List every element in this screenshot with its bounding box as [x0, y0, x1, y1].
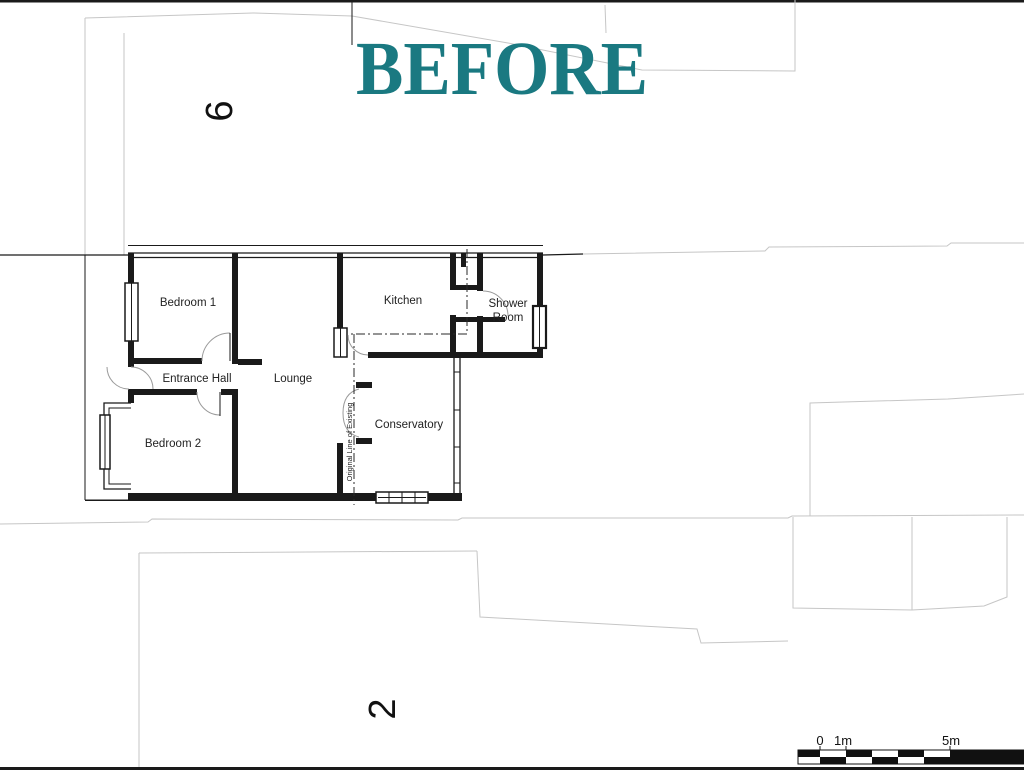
wall-shower-west	[477, 253, 483, 291]
scale-label-0: 0	[816, 733, 823, 748]
wall-kitchen-east	[450, 253, 456, 290]
wall-bedroom2-lounge	[232, 389, 238, 500]
before-title: BEFORE	[356, 27, 648, 111]
sheet-top-border	[0, 0, 1024, 3]
plot-number-2: 2	[362, 698, 404, 719]
sheet-bottom-border	[0, 767, 1024, 770]
room-label-entrance-hall: Entrance Hall	[162, 373, 231, 385]
scale-bar: 0 1m 5m	[798, 733, 1024, 764]
room-label-bedroom2: Bedroom 2	[145, 438, 201, 450]
original-line-of-existing	[348, 249, 467, 505]
room-label-lounge: Lounge	[274, 373, 312, 385]
window-bedroom1	[125, 283, 138, 341]
wall-bedroom1-lounge	[232, 253, 238, 364]
room-label-shower-line2: Room	[493, 312, 524, 324]
room-label-shower-line1: Shower	[489, 298, 528, 310]
original-line-label: Original Line of Existing	[345, 403, 354, 482]
house-footprint	[85, 246, 546, 506]
window-shower-east	[533, 306, 546, 348]
wall-kitchen-bottom	[368, 352, 480, 358]
wall-bedroom2-top	[128, 389, 197, 395]
window-lounge-east	[334, 328, 347, 357]
window-conservatory-south	[376, 492, 428, 503]
room-labels: Bedroom 1 Entrance Hall Bedroom 2 Lounge…	[145, 295, 528, 481]
room-label-bedroom1: Bedroom 1	[160, 297, 216, 309]
wall-shower-east	[537, 253, 543, 306]
wall-shower-bottom	[477, 352, 543, 358]
plot-number-6: 6	[199, 100, 241, 121]
site-boundary-lines	[0, 0, 1024, 767]
wall-bedroom1-bottom	[128, 358, 202, 364]
bay-window-bedroom2	[100, 403, 131, 489]
conservatory-glazing	[454, 358, 460, 494]
scale-label-1m: 1m	[834, 733, 852, 748]
wall-lounge-kitchen	[337, 253, 343, 330]
site-plan-drawing: Bedroom 1 Entrance Hall Bedroom 2 Lounge…	[0, 0, 1024, 775]
room-label-conservatory: Conservatory	[375, 419, 444, 431]
scale-label-5m: 5m	[942, 733, 960, 748]
room-label-kitchen: Kitchen	[384, 295, 422, 307]
